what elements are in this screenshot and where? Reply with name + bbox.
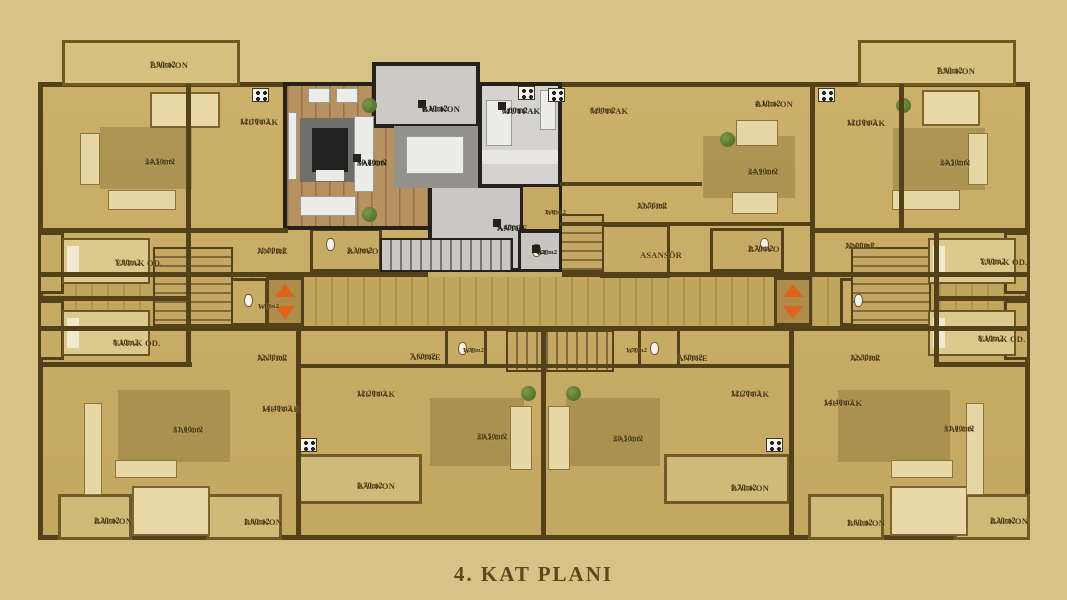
room-label-salon: SALON30,80m2 — [353, 154, 361, 162]
room-label-mutfak: MUTFAK8,80m2 — [498, 102, 506, 110]
room-label-antre: ANTRE9,40m2 — [493, 219, 501, 227]
room-label-balkon: BALKON4,10m2 — [418, 100, 426, 108]
room-label-wc: WC1,20m2 — [532, 245, 540, 253]
floor-plan-stage: BALKON7,90m2MUTFAK12,10m2SALON24,50m2YAT… — [0, 0, 1067, 600]
room-labels-layer: BALKON7,90m2MUTFAK12,10m2SALON24,50m2YAT… — [0, 0, 1067, 600]
floor-plan-title: 4. KAT PLANI — [0, 562, 1067, 587]
